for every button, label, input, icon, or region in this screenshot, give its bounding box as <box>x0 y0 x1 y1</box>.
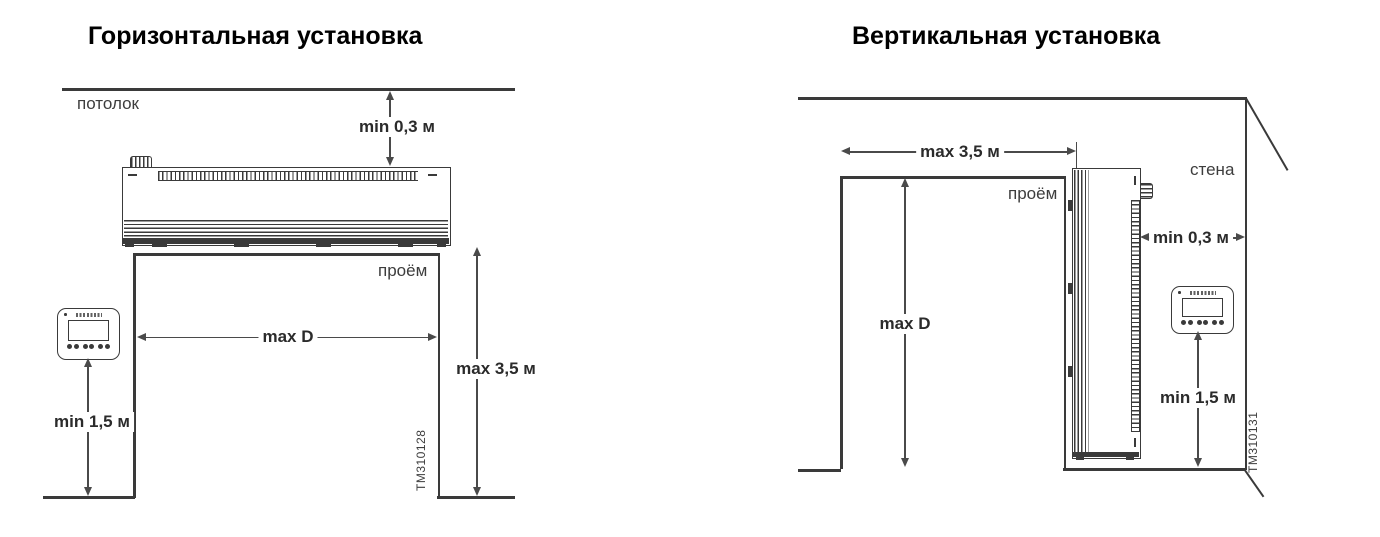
ceiling-line <box>62 88 515 91</box>
controller-height-arrow-up-v <box>1194 331 1202 340</box>
ceiling-gap-arrow-down <box>386 157 394 166</box>
unit-tab-2 <box>1068 283 1072 294</box>
controller-buttons-v <box>1172 320 1233 325</box>
unit-tab-1 <box>1068 200 1072 211</box>
opening-height-dim-label: max D <box>875 314 934 334</box>
opening-height-arrow-up <box>901 178 909 187</box>
controller-brand-logo-v <box>1190 291 1216 296</box>
controller-buttons <box>58 344 119 349</box>
opening-top-line-v <box>840 176 1066 179</box>
controller-height-arrow-down <box>84 487 92 496</box>
ceiling-gap-dim-label: min 0,3 м <box>355 117 439 137</box>
drawing-id-horizontal: TM310128 <box>414 433 428 491</box>
unit-feet <box>152 244 414 248</box>
intake-grille <box>158 171 418 181</box>
wall-controller <box>57 308 120 360</box>
controller-height-arrow-down-v <box>1194 458 1202 467</box>
ceiling-label: потолок <box>77 94 139 114</box>
controller-led <box>64 313 67 316</box>
opening-left-wall-v <box>840 176 843 469</box>
controller-display <box>68 320 109 341</box>
opening-label-v: проём <box>1008 184 1057 204</box>
opening-width-arrow-left <box>137 333 146 341</box>
unit-foot-right <box>437 244 446 247</box>
controller-header <box>58 312 119 318</box>
opening-right-wall <box>438 253 441 498</box>
wall-break-line-bottom <box>1244 470 1264 497</box>
opening-width-dim-label: max D <box>258 327 317 347</box>
controller-display-v <box>1182 298 1223 317</box>
opening-width-arrow-right <box>428 333 437 341</box>
outlet-louvers <box>124 220 448 237</box>
unit-foot-left <box>125 244 134 247</box>
opening-right-jamb-v <box>1064 178 1066 470</box>
wall-gap-arrow-left <box>1140 233 1149 241</box>
intake-grille-v <box>1131 200 1141 432</box>
top-cap-mark-v <box>1134 176 1136 185</box>
top-wall-line <box>798 97 1247 100</box>
wall-gap-arrow-right <box>1236 233 1245 241</box>
controller-height-dim-label-v: min 1,5 м <box>1156 388 1240 408</box>
opening-top-line <box>133 253 440 256</box>
jet-reach-dim-label: max 3,5 м <box>916 142 1004 162</box>
controller-height-dim-label: min 1,5 м <box>50 412 134 432</box>
installation-diagram: Горизонтальная установка потолок min 0,3… <box>0 0 1380 537</box>
jet-reach-extension-line <box>1076 142 1078 170</box>
unit-foot-v-2 <box>1126 457 1134 460</box>
wall-break-line-top <box>1245 98 1288 171</box>
cable-gland-v <box>1140 183 1153 199</box>
wall-controller-v <box>1171 286 1234 334</box>
ceiling-gap-arrow-up <box>386 91 394 100</box>
floor-line-left <box>43 496 135 499</box>
controller-height-arrow-up <box>84 358 92 367</box>
mount-height-dim-label: max 3,5 м <box>452 359 540 379</box>
opening-left-wall <box>133 253 136 498</box>
controller-brand-logo <box>76 313 102 318</box>
opening-height-arrow-down <box>901 458 909 467</box>
wall-label: стена <box>1190 160 1234 180</box>
wall-gap-dim-label: min 0,3 м <box>1149 228 1233 248</box>
bottom-cap-mark-v <box>1134 438 1136 447</box>
mount-height-arrow-up <box>473 247 481 256</box>
unit-tab-3 <box>1068 366 1072 377</box>
floor-line-right <box>437 496 515 499</box>
right-cap-mark <box>428 174 437 176</box>
horizontal-panel-title: Горизонтальная установка <box>88 22 422 51</box>
floor-line-v <box>1063 468 1246 471</box>
controller-led-v <box>1178 291 1181 294</box>
outlet-louvers-v <box>1074 170 1089 455</box>
opening-label: проём <box>378 261 427 281</box>
vertical-panel-title: Вертикальная установка <box>852 22 1160 51</box>
mount-height-arrow-down <box>473 487 481 496</box>
left-cap-mark <box>128 174 137 176</box>
drawing-id-vertical: TM310131 <box>1246 415 1260 473</box>
unit-foot-v-1 <box>1076 457 1084 460</box>
jet-reach-arrow-left <box>841 147 850 155</box>
controller-header-v <box>1172 290 1233 296</box>
floor-line-left-v <box>798 469 841 472</box>
